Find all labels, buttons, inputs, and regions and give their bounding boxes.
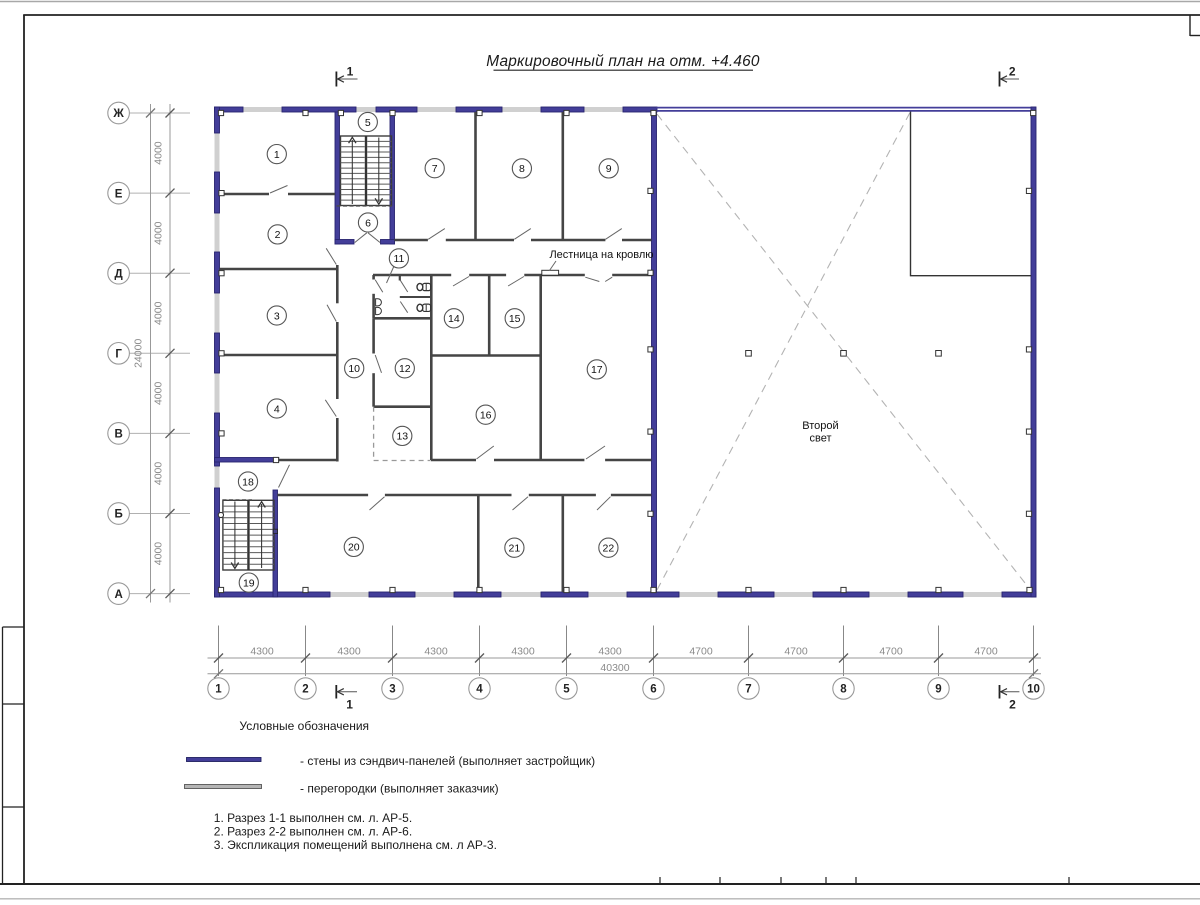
svg-text:16: 16 [480, 410, 492, 422]
svg-text:3. Экспликация помещений выпол: 3. Экспликация помещений выполнена см. л… [214, 838, 497, 852]
svg-text:4: 4 [476, 684, 483, 696]
svg-text:4: 4 [274, 403, 280, 415]
svg-text:4000: 4000 [153, 542, 165, 566]
svg-text:15: 15 [509, 313, 521, 325]
svg-text:Условные обозначения: Условные обозначения [239, 719, 369, 733]
svg-text:3: 3 [274, 310, 280, 322]
svg-text:4300: 4300 [424, 646, 448, 658]
svg-text:22: 22 [603, 543, 615, 555]
svg-text:17: 17 [591, 364, 603, 376]
svg-text:5: 5 [563, 684, 570, 696]
svg-text:4300: 4300 [250, 646, 274, 658]
svg-text:7: 7 [432, 163, 438, 175]
svg-text:1: 1 [347, 65, 354, 79]
svg-text:13: 13 [396, 431, 408, 443]
svg-text:4300: 4300 [598, 646, 622, 658]
svg-text:4700: 4700 [689, 646, 713, 658]
svg-text:12: 12 [399, 363, 411, 375]
svg-text:4000: 4000 [153, 382, 165, 406]
svg-text:19: 19 [243, 577, 255, 589]
svg-text:Д: Д [114, 268, 122, 280]
svg-text:6: 6 [365, 217, 371, 229]
svg-text:2: 2 [1009, 65, 1016, 79]
svg-text:Ж: Ж [112, 108, 124, 120]
svg-text:1: 1 [215, 684, 222, 696]
svg-text:9: 9 [935, 684, 941, 696]
svg-text:5: 5 [365, 117, 371, 129]
svg-text:14: 14 [448, 313, 460, 325]
svg-text:4000: 4000 [153, 301, 165, 325]
svg-text:4300: 4300 [511, 646, 535, 658]
svg-text:4000: 4000 [153, 221, 165, 245]
svg-text:4000: 4000 [153, 462, 165, 486]
svg-text:1: 1 [274, 149, 280, 161]
svg-text:11: 11 [393, 253, 404, 265]
svg-text:2. Разрез 2-2 выполнен см. л.: 2. Разрез 2-2 выполнен см. л. АР-6. [214, 825, 412, 839]
svg-text:40300: 40300 [600, 662, 629, 674]
svg-text:4300: 4300 [337, 646, 361, 658]
svg-text:18: 18 [242, 476, 254, 488]
svg-text:9: 9 [606, 163, 612, 175]
svg-text:2: 2 [1009, 698, 1016, 712]
svg-text:Лестница на кровлю: Лестница на кровлю [549, 249, 653, 261]
svg-text:4000: 4000 [153, 141, 165, 165]
svg-text:- перегородки (выполняет заказ: - перегородки (выполняет заказчик) [300, 782, 499, 796]
svg-text:8: 8 [840, 684, 847, 696]
svg-text:1: 1 [346, 698, 353, 712]
svg-text:21: 21 [509, 543, 521, 555]
svg-text:4700: 4700 [784, 646, 808, 658]
svg-text:4700: 4700 [879, 646, 903, 658]
svg-text:- стены из сэндвич-панелей (вы: - стены из сэндвич-панелей (выполняет за… [300, 754, 595, 768]
svg-text:А: А [114, 589, 122, 601]
svg-text:1. Разрез 1-1 выполнен см. л.: 1. Разрез 1-1 выполнен см. л. АР-5. [214, 811, 412, 825]
svg-text:10: 10 [348, 363, 360, 375]
svg-text:Г: Г [115, 349, 122, 361]
svg-text:Е: Е [115, 188, 123, 200]
svg-text:7: 7 [745, 684, 751, 696]
svg-text:Маркировочный план на отм. +4.: Маркировочный план на отм. +4.460 [486, 53, 760, 70]
svg-text:Б: Б [114, 509, 122, 521]
svg-text:В: В [114, 429, 122, 441]
svg-text:24000: 24000 [133, 339, 145, 368]
svg-text:4700: 4700 [974, 646, 998, 658]
svg-text:2: 2 [275, 229, 281, 241]
svg-text:Второй: Второй [802, 420, 838, 432]
svg-text:20: 20 [348, 542, 360, 554]
svg-text:свет: свет [809, 433, 831, 445]
svg-text:3: 3 [389, 684, 395, 696]
svg-text:8: 8 [519, 163, 525, 175]
svg-text:10: 10 [1027, 684, 1040, 696]
svg-text:2: 2 [302, 684, 308, 696]
svg-text:6: 6 [650, 684, 656, 696]
